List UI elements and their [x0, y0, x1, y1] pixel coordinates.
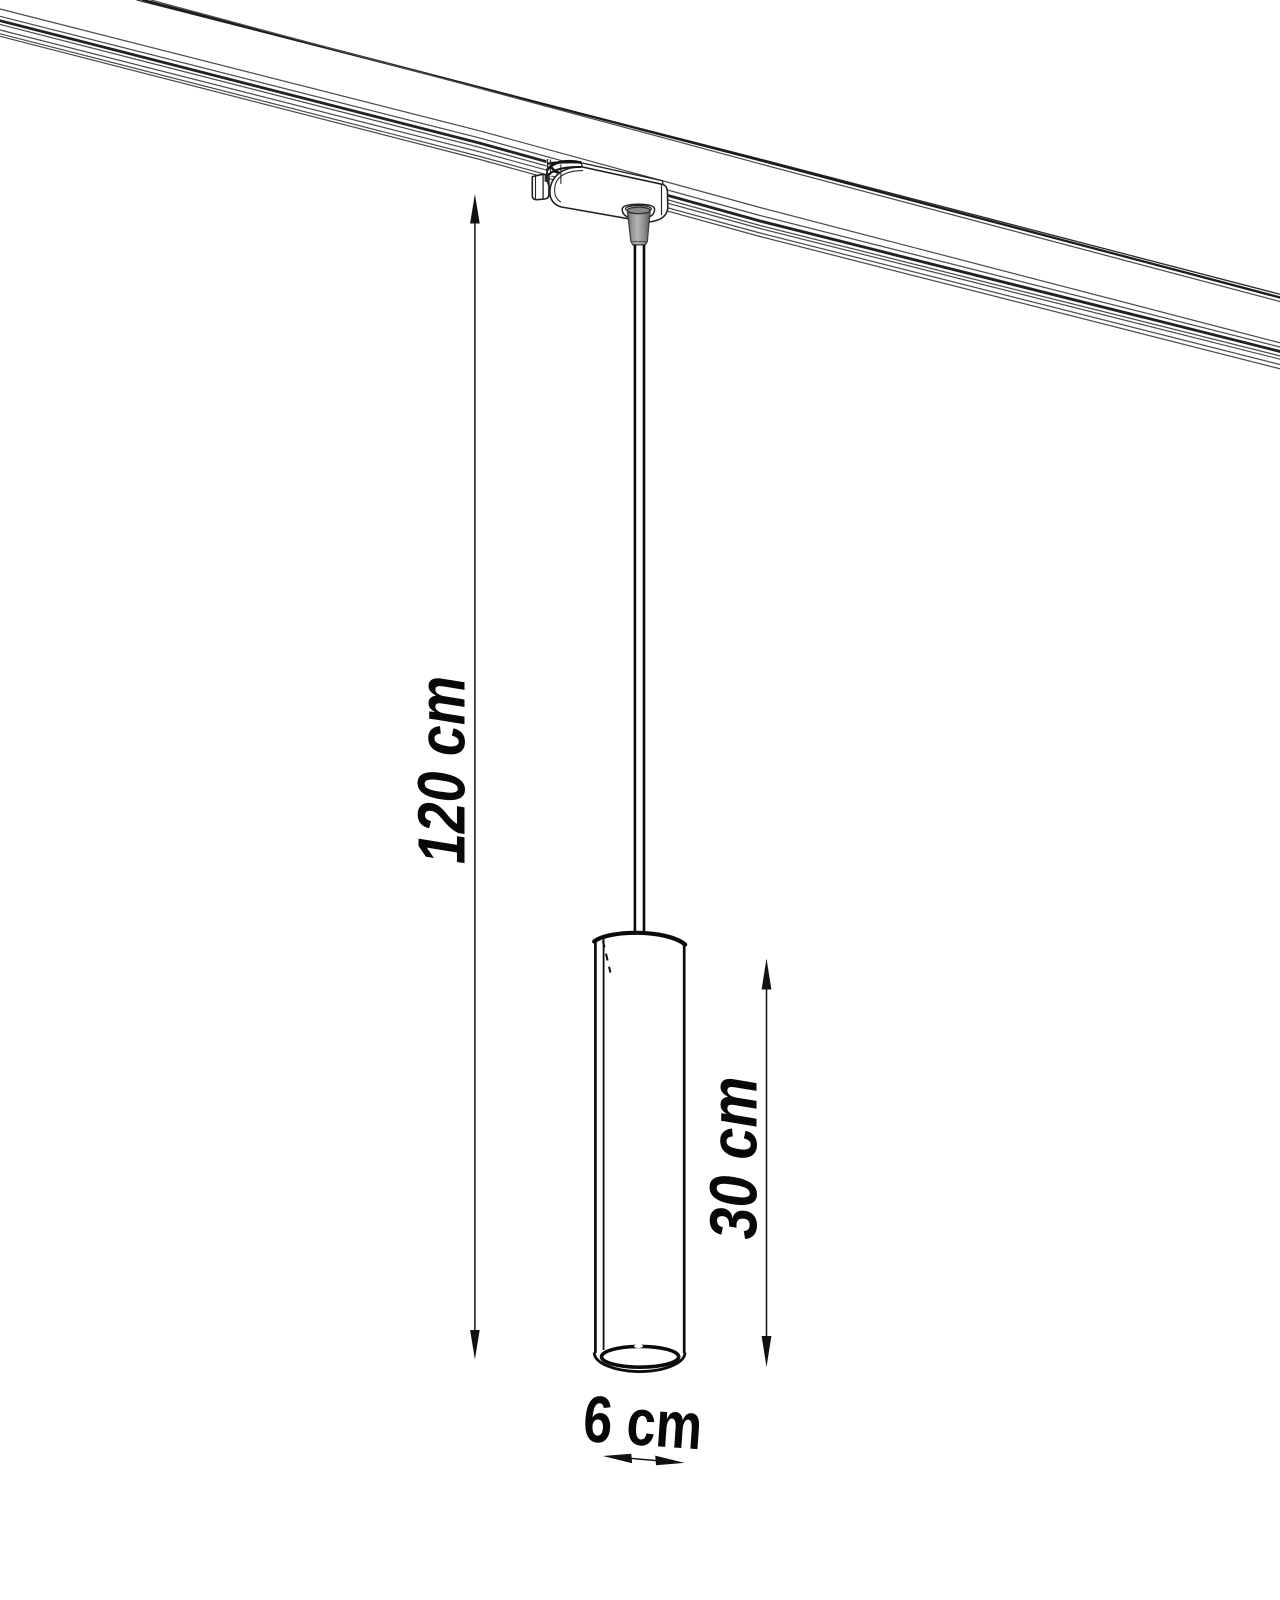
svg-text:120 cm: 120 cm: [405, 676, 480, 864]
svg-text:30 cm: 30 cm: [697, 1077, 772, 1240]
svg-text:6 cm: 6 cm: [581, 1381, 705, 1463]
